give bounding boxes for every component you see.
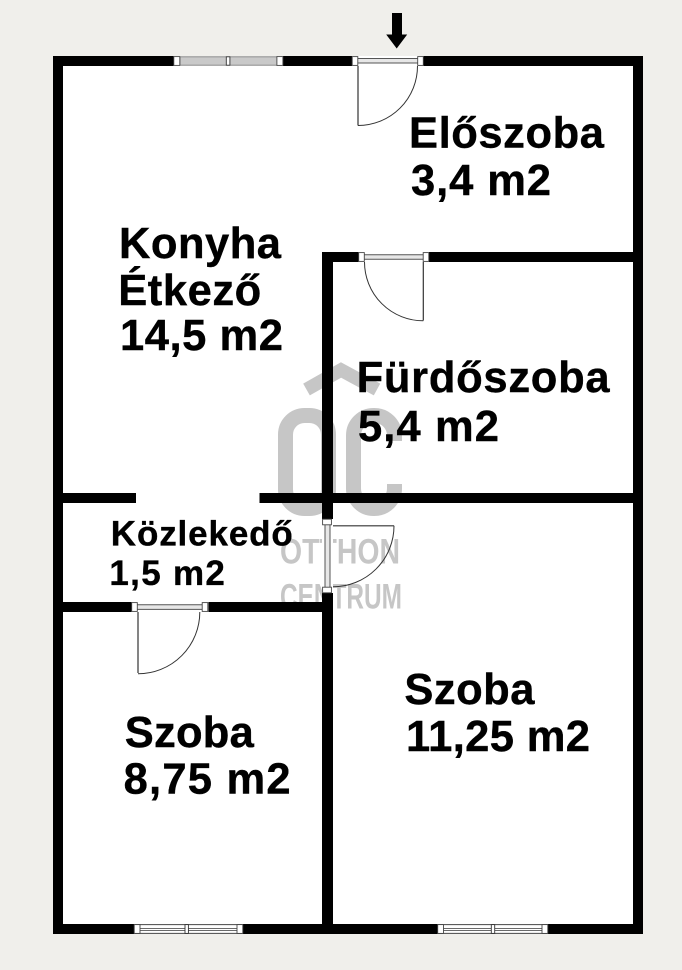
svg-text:Étkező: Étkező bbox=[118, 265, 261, 315]
svg-text:14,5 m2: 14,5 m2 bbox=[120, 312, 283, 360]
svg-text:Közlekedő: Közlekedő bbox=[111, 515, 293, 554]
svg-text:11,25 m2: 11,25 m2 bbox=[406, 713, 590, 761]
svg-text:1,5 m2: 1,5 m2 bbox=[109, 554, 224, 593]
svg-text:Szoba: Szoba bbox=[125, 709, 255, 757]
svg-text:8,75 m2: 8,75 m2 bbox=[124, 756, 291, 804]
svg-text:5,4 m2: 5,4 m2 bbox=[358, 403, 499, 451]
svg-text:Szoba: Szoba bbox=[404, 666, 535, 714]
svg-text:Konyha: Konyha bbox=[119, 220, 282, 268]
svg-text:Fürdőszoba: Fürdőszoba bbox=[357, 354, 611, 402]
svg-text:Előszoba: Előszoba bbox=[409, 110, 605, 158]
svg-text:3,4 m2: 3,4 m2 bbox=[411, 157, 551, 205]
svg-text:OTTHON: OTTHON bbox=[280, 533, 400, 572]
